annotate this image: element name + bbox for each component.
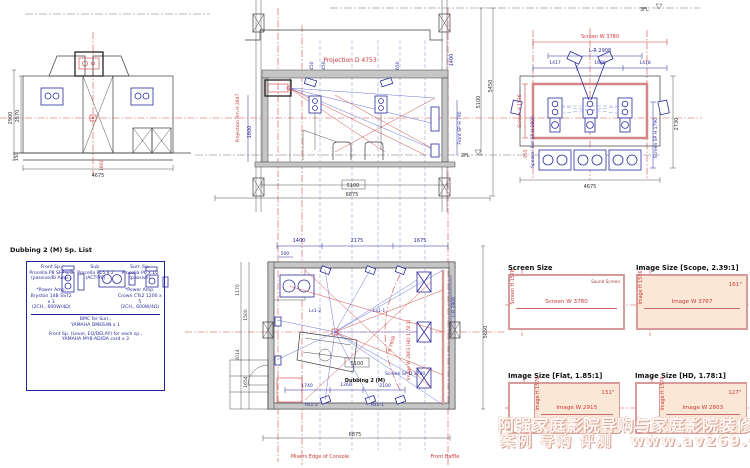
plan-dim-1675: 1675 xyxy=(414,238,427,244)
dim-955: 955 xyxy=(523,149,529,158)
lcr-speaker-stacks xyxy=(548,98,632,132)
radius-label: R 7958 xyxy=(387,335,397,352)
dim-1417: 1417 xyxy=(549,60,561,66)
plan-sub-pair xyxy=(280,275,314,297)
dim-5100-boxed: 5100 xyxy=(347,183,360,189)
front-amp-model: Bryston 14B SST2 x 3 xyxy=(29,294,73,305)
front-elevation-drawing: Screen W 3780 L-R 2908 1417 1680 1418 Sc… xyxy=(505,10,750,200)
dim-4675-elev: 4675 xyxy=(584,184,597,190)
plan-drawing: 1400 2175 1675 500 xyxy=(185,200,505,468)
screen-width-dimline xyxy=(516,308,617,309)
front-amp-note: (2CH., 600W/4Ω) xyxy=(29,305,73,311)
dim-650: 650 xyxy=(395,61,401,70)
dim-450-b: 450 xyxy=(321,61,327,70)
plan-dim-1400: 1400 xyxy=(293,238,306,244)
watermark-url: www.av269.com xyxy=(630,432,750,450)
screen-width-label: Screen W 3780 xyxy=(581,34,619,40)
plan-dim-500: 500 xyxy=(281,251,290,257)
door-height-dim: 1800 xyxy=(99,159,105,171)
dim-1400: 1400 xyxy=(449,54,455,67)
flat-diagonal: 131" xyxy=(601,390,614,396)
plan-lr-label: L-R 2908 xyxy=(451,297,457,317)
screen-width-dim: Screen W 3780 xyxy=(510,299,623,305)
hatch-boxes xyxy=(133,128,171,153)
tag-ls1-2: Ls1-2 xyxy=(309,308,321,314)
plan-dim-1740: 1740 xyxy=(301,383,313,389)
hd-size-title: Image Size [HD, 1.78:1] xyxy=(635,372,726,380)
height-inner-dim: 2570 xyxy=(15,110,21,123)
flat-size-title: Image Size [Flat, 1.85:1] xyxy=(508,372,602,380)
lr-spacing-label: L-R 2908 xyxy=(589,48,611,54)
note-card: YAMAHA MY8-AD/DA card x 3 xyxy=(27,337,164,343)
plan-lcr-speakers xyxy=(417,272,431,388)
dim-6875: 6875 xyxy=(346,192,359,198)
screen-sp-height-label: Screen SP H 1790 xyxy=(653,118,659,158)
plan-dim-5100-boxed: 5100 xyxy=(351,361,364,367)
height-total-dim: 2900 xyxy=(8,112,14,125)
section-drawing: Projection D 4753 Projection Rm H 2847 1… xyxy=(185,0,505,212)
screen-height-label: Screen H 1576 xyxy=(517,94,523,127)
width-dim: 4675 xyxy=(92,173,105,179)
plan-dim-2014: 2014 xyxy=(235,349,241,361)
speaker-set-height-label: Speaker Set SP H 1800 xyxy=(530,116,536,168)
screen-sp-depth-label: Screen SP D 3780 xyxy=(385,371,425,377)
left-speaker-symbol xyxy=(41,88,63,105)
speaker-list-box: Front Sp. Procella P8 SFP x 3 (passive/B… xyxy=(26,261,165,391)
dim-1800: 1800 xyxy=(247,126,253,139)
cad-drawing-sheet: 3FL xyxy=(0,0,750,468)
sub-speaker-glyph xyxy=(95,265,141,295)
speaker-list-title: Dubbing 2 (M) Sp. List xyxy=(10,246,92,254)
screen-size-panel: Sound Screen Screen H 1576 Screen W 3780 xyxy=(508,274,625,330)
speaker-list-notes-1: BMC for Surr., YAMAHA DME64N x 1 xyxy=(31,314,160,328)
mixing-console xyxy=(297,332,357,372)
ceiling-speakers xyxy=(304,78,392,87)
left-elevation-drawing: 1800 2900 2570 150 4675 xyxy=(5,28,200,180)
projector-front-view xyxy=(79,58,99,69)
dim-450-a: 450 xyxy=(309,61,315,70)
watermark-keywords: 案例 导购 评测 xyxy=(500,432,612,450)
hd-diagonal: 127" xyxy=(728,390,741,396)
front-speaker-column: Front Sp. Procella P8 SFP x 3 (passive/B… xyxy=(29,265,73,311)
tag-rs1-2: Rs1-2 xyxy=(305,402,318,408)
dim-1680: 1680 xyxy=(594,60,606,66)
right-speaker-symbol xyxy=(131,88,153,105)
surround-amp-model: Crown CTs2 1200 x 5 xyxy=(118,294,162,305)
dim-5100-vertical: 5100 xyxy=(476,96,482,109)
front-sp-height-label: Front SP H 790 xyxy=(457,111,463,144)
tag-ls1-1: Ls1-1 xyxy=(373,308,385,314)
surround-amp-note: (2CH., 600W/4Ω) xyxy=(118,305,162,311)
level-2fl-marker xyxy=(475,150,481,155)
level-2fl-label: 2FL xyxy=(461,153,470,159)
plan-dim-1654: 1654 xyxy=(243,376,249,388)
plan-dim-5650: 5650 xyxy=(483,326,489,339)
scope-width-dimline xyxy=(644,308,740,309)
screen-wall-speakers xyxy=(431,107,439,157)
base-dim: 150 xyxy=(14,153,20,162)
mixers-edge-note: Mixers Edge of Console xyxy=(291,454,349,460)
plan-dim-1500: 1500 xyxy=(243,309,249,321)
flat-width-dim: Image W 2915 xyxy=(535,405,619,411)
door-front-view xyxy=(83,76,113,153)
projection-distance-label: Projection D 4753 xyxy=(323,57,377,64)
scope-width-dim: Image W 3767 xyxy=(638,299,746,305)
room-structure xyxy=(255,70,455,167)
room-name-label: Dubbing 2 (M) xyxy=(345,378,385,384)
hd-width-dim: Image W 2803 xyxy=(660,405,746,411)
dim-2730: 2730 xyxy=(674,118,680,131)
front-speaker-glyph xyxy=(51,265,91,295)
projection-room-height-label: Projection Rm H 2847 xyxy=(235,93,241,142)
dim-5450-vertical: 5450 xyxy=(488,80,494,93)
sound-screen-note: Sound Screen xyxy=(591,279,620,284)
watermark-line-2: 案例 导购 评测www.av269.com xyxy=(500,430,750,451)
door-swing xyxy=(248,365,268,385)
subwoofers xyxy=(539,150,641,170)
plan-dim-1170: 1170 xyxy=(235,284,241,296)
scope-diagonal: 161" xyxy=(729,282,742,288)
dim-1418: 1418 xyxy=(639,60,651,66)
speaker-list-notes-2: Front Sp. (Level, EQ/DELAY) for each sp.… xyxy=(27,332,164,343)
plan-dim-2175: 2175 xyxy=(351,238,364,244)
surround-speaker-glyph xyxy=(140,265,176,295)
projector-section xyxy=(265,80,291,96)
note-dme: YAMAHA DME64N x 1 xyxy=(31,323,160,329)
scope-size-panel: 161" Image H 1576 Image W 3767 xyxy=(636,274,748,330)
tag-rs1-1: Rs1-1 xyxy=(371,402,384,408)
scope-size-title: Image Size [Scope, 2.39:1] xyxy=(636,264,739,272)
front-baffle-note: Front Baffle xyxy=(431,454,460,460)
plan-dim-6875: 6875 xyxy=(349,432,362,438)
